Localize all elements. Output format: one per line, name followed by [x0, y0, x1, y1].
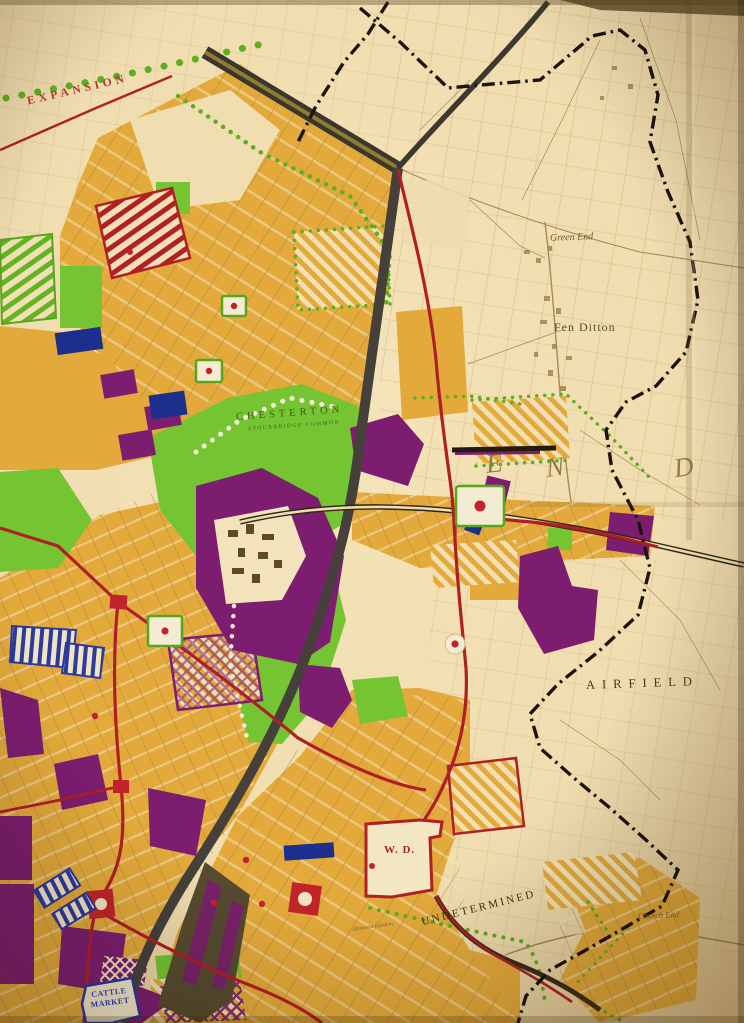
- district-letter-n: N: [544, 451, 565, 484]
- map-canvas: [0, 0, 744, 1023]
- map-photo: EXPANSION Green End Fen Ditton CHESTERTO…: [0, 0, 744, 1023]
- district-letter-e: E: [484, 447, 504, 480]
- photo-vignette: [0, 0, 744, 1023]
- district-letter-d: D: [672, 451, 696, 484]
